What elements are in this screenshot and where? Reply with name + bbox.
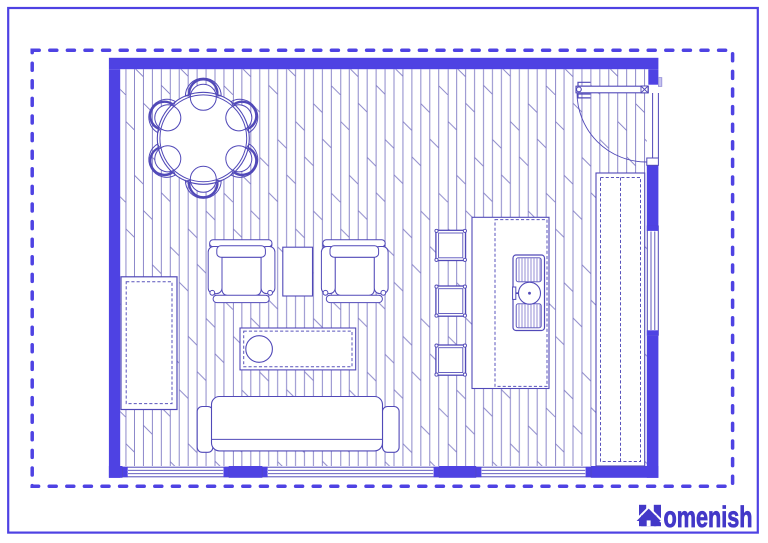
svg-text:omenish: omenish [664, 501, 753, 534]
